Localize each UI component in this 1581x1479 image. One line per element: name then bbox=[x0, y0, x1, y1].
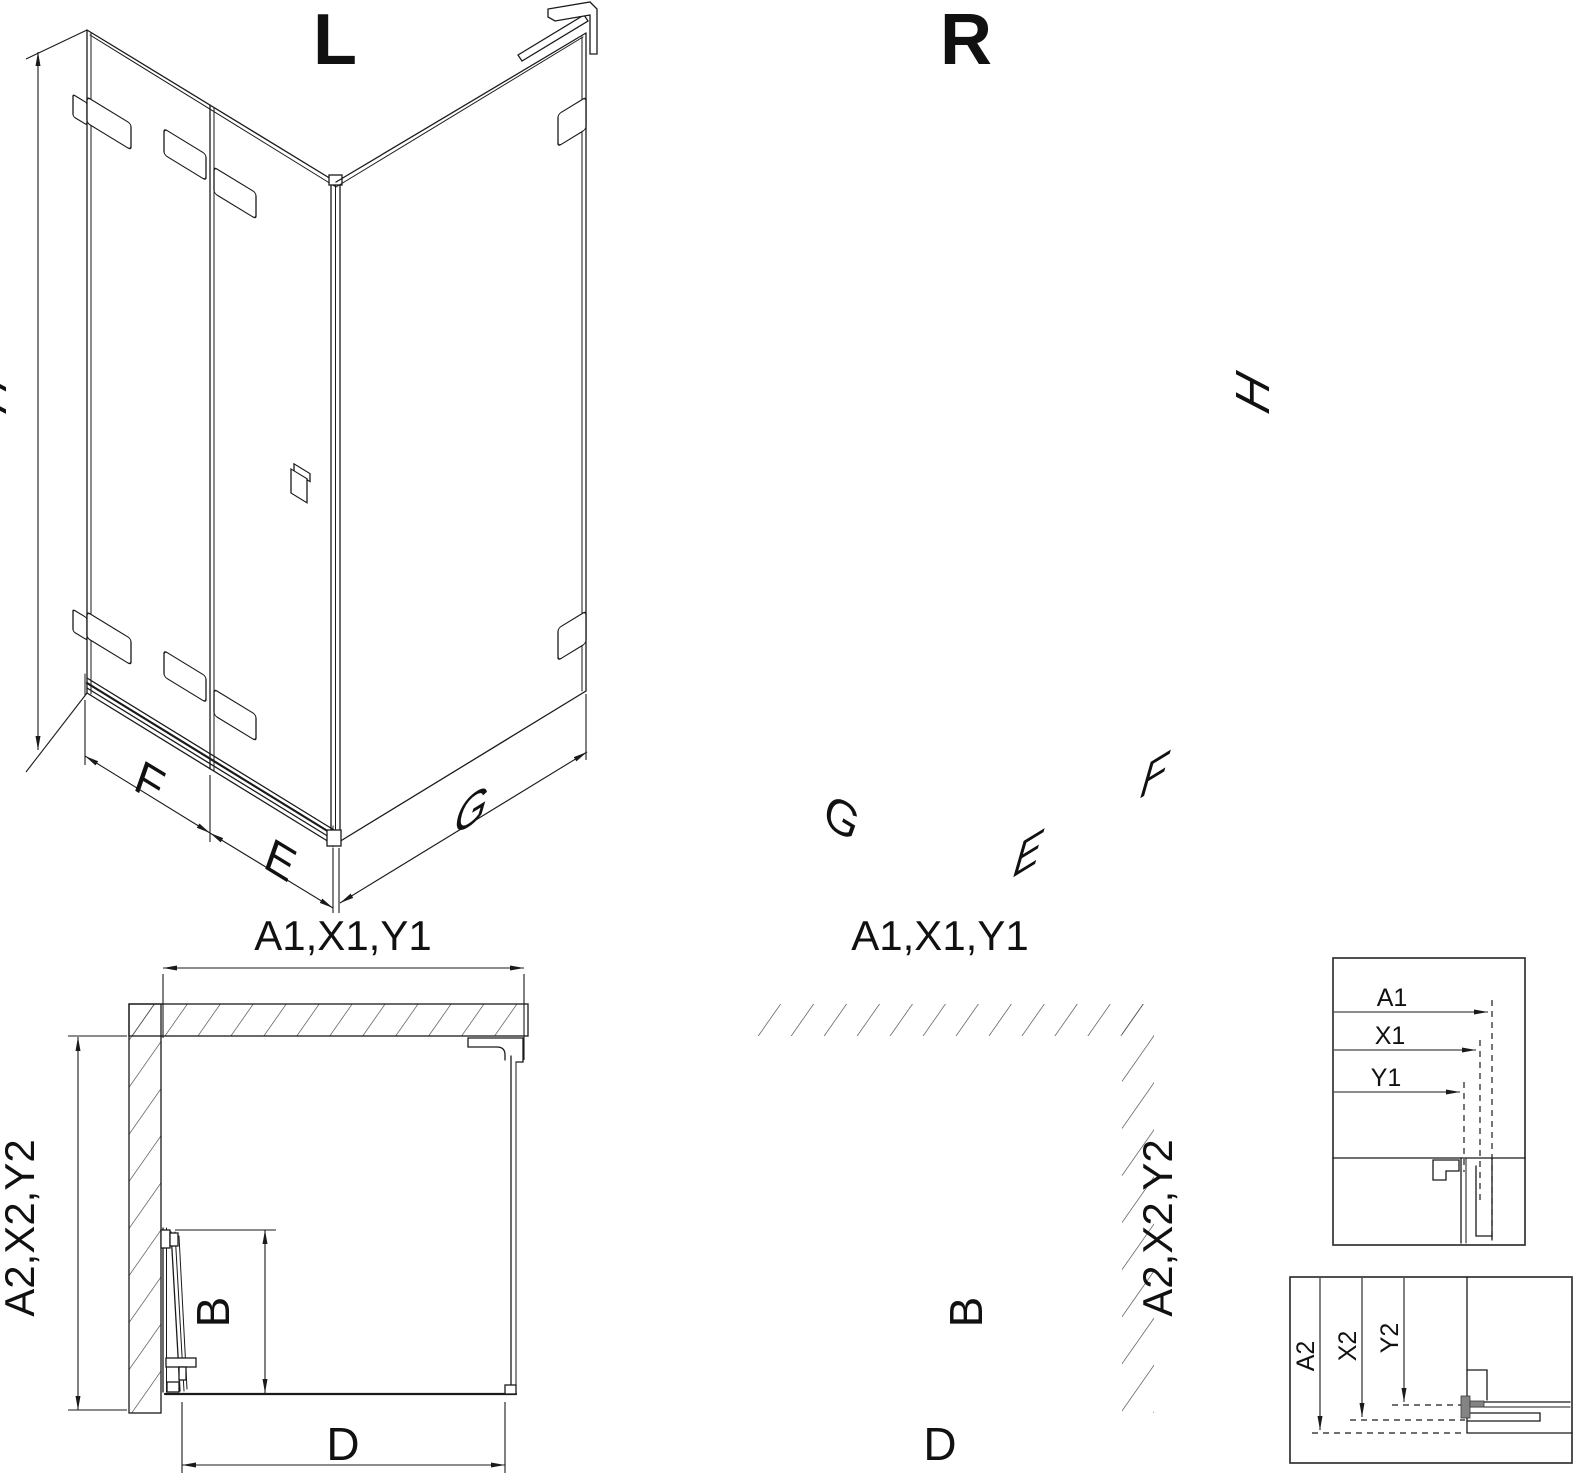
dim-label-width-plan-right: A1,X1,Y1 bbox=[851, 912, 1028, 959]
detail-label-a1: A1 bbox=[1377, 984, 1408, 1012]
dim-label-door-swing-left: B bbox=[187, 1297, 239, 1328]
label-variant-left: L bbox=[313, 0, 357, 80]
dim-label-door-right: E bbox=[1010, 818, 1046, 889]
dim-label-door-swing-right: B bbox=[940, 1297, 992, 1328]
profile-clamp-section bbox=[1461, 1396, 1470, 1418]
plan-left-side-wall-hatch bbox=[129, 1004, 161, 1413]
dim-label-fixed-right: F bbox=[1137, 740, 1172, 810]
plan-left-top-wall-hatch bbox=[129, 1004, 528, 1036]
dim-label-side-right: G bbox=[821, 781, 861, 854]
detail-label-x1: X1 bbox=[1375, 1022, 1406, 1050]
dim-label-opening-right: D bbox=[923, 1418, 956, 1470]
plan-right-top-wall-hatch bbox=[755, 1004, 1154, 1036]
dim-label-depth-plan-left: A2,X2,Y2 bbox=[0, 1139, 43, 1316]
dim-label-opening-left: D bbox=[326, 1418, 359, 1470]
detail-width-box bbox=[1333, 958, 1525, 1245]
dim-label-width-plan-left: A1,X1,Y1 bbox=[254, 912, 431, 959]
dim-label-height-right: H bbox=[1226, 366, 1280, 419]
shower-enclosure-diagram: L H F E G R H G E F A1,X1,Y1 A2,X2,Y2 B … bbox=[0, 0, 1581, 1479]
label-variant-right: R bbox=[940, 0, 992, 80]
detail-label-x2: X2 bbox=[1334, 1331, 1362, 1362]
dim-label-fixed-left: F bbox=[132, 747, 167, 817]
profile-bracket-section bbox=[1433, 1160, 1459, 1180]
dim-label-height-left: H bbox=[0, 366, 17, 419]
detail-label-y1: Y1 bbox=[1371, 1064, 1402, 1092]
detail-depth-box bbox=[1290, 1277, 1572, 1463]
dim-label-depth-plan-right: A2,X2,Y2 bbox=[1134, 1139, 1181, 1316]
technical-drawing-page: L H F E G R H G E F A1,X1,Y1 A2,X2,Y2 B … bbox=[0, 0, 1581, 1479]
detail-label-y2: Y2 bbox=[1376, 1323, 1404, 1354]
dim-label-side-left: G bbox=[451, 774, 491, 847]
dim-label-door-left: E bbox=[262, 825, 298, 896]
iso-left-view bbox=[26, 2, 597, 913]
detail-label-a2: A2 bbox=[1292, 1341, 1320, 1372]
